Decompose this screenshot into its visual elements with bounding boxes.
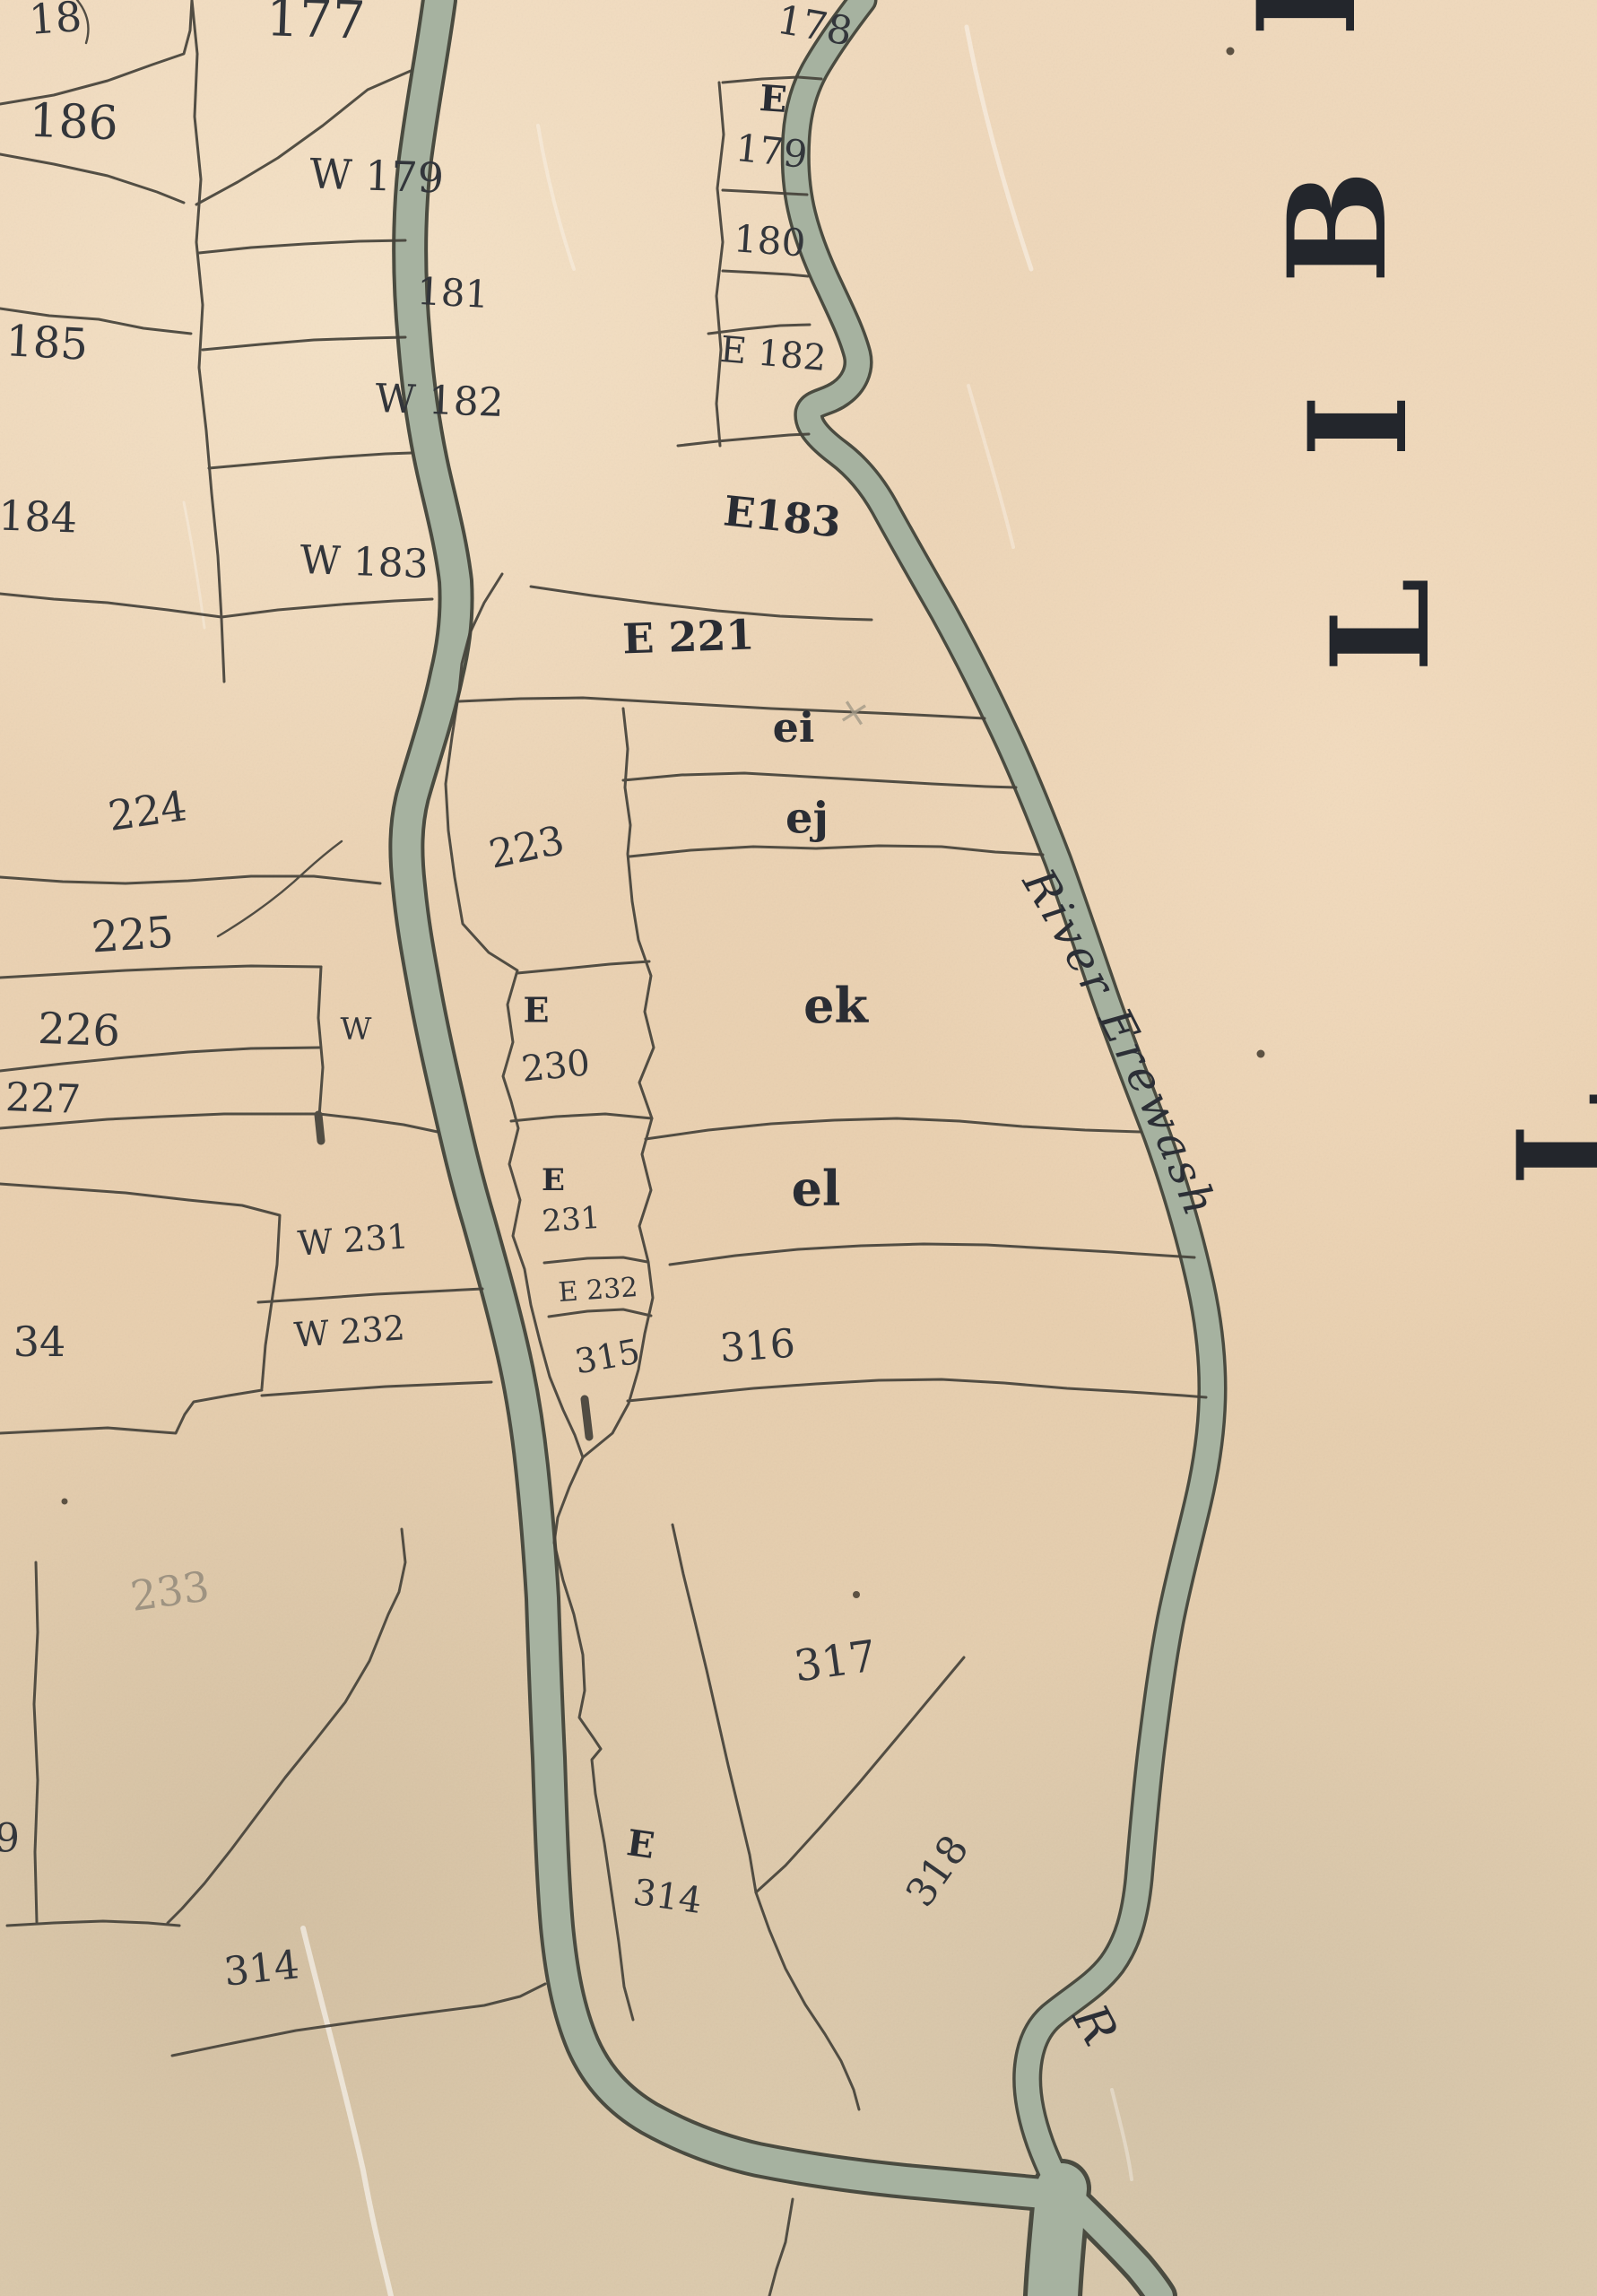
parcel-label-ei: ei — [773, 703, 815, 752]
big-letter-E-partial: E — [1228, 0, 1386, 37]
parcel-label-184: 184 — [0, 491, 78, 542]
parcel-label-18: 18 — [28, 0, 83, 44]
parcel-label-181: 181 — [416, 269, 490, 317]
big-letter-B: B — [1259, 170, 1417, 284]
parcel-label-W-182: W 182 — [375, 376, 505, 426]
parcel-label-W-183: W 183 — [299, 537, 430, 587]
parcel-label-186: 186 — [28, 94, 118, 151]
parcel-label-E: E — [624, 1822, 657, 1867]
parcel-label-314: 314 — [221, 1942, 301, 1995]
parcel-label-231: 231 — [541, 1200, 602, 1239]
parcel-label-E-232: E 232 — [557, 1272, 638, 1309]
parcel-label-E-221: E 221 — [621, 610, 755, 663]
big-letter-L: L — [1302, 578, 1460, 672]
parcel-label-W: W — [341, 1012, 372, 1048]
parcel-label-ek: ek — [803, 977, 869, 1034]
parcel-label-227: 227 — [4, 1074, 82, 1123]
big-letter-I: I — [1280, 395, 1437, 457]
parcel-label-9: 9 — [0, 1816, 20, 1862]
map-page: 18177178E179180186W 179181185W 182E 1821… — [0, 0, 1597, 2296]
parcel-label-177: 177 — [265, 0, 367, 51]
parcel-label-W-231: W 231 — [297, 1216, 410, 1264]
parcel-label-E: E — [542, 1162, 565, 1198]
parcel-label-E: E — [758, 77, 788, 121]
parcel-label-225: 225 — [90, 907, 175, 962]
parcel-label-230: 230 — [519, 1042, 592, 1091]
parcel-label-W-232: W 232 — [293, 1308, 406, 1355]
parcel-label-179: 179 — [733, 126, 810, 177]
parcel-label-W-179: W 179 — [308, 149, 444, 202]
parcel-label-226: 226 — [37, 1004, 121, 1057]
big-letter-L-partial: L — [1489, 1091, 1597, 1186]
parcel-label-185: 185 — [4, 316, 89, 370]
map-image: 18177178E179180186W 179181185W 182E 1821… — [0, 0, 1597, 2296]
parcel-label-316: 316 — [718, 1321, 796, 1372]
parcel-label-E: E — [524, 990, 550, 1031]
parcel-label-el: el — [792, 1160, 841, 1217]
parcel-label-180: 180 — [733, 216, 807, 265]
parcel-label-34: 34 — [13, 1318, 66, 1366]
parcel-label-ej: ej — [785, 794, 829, 844]
